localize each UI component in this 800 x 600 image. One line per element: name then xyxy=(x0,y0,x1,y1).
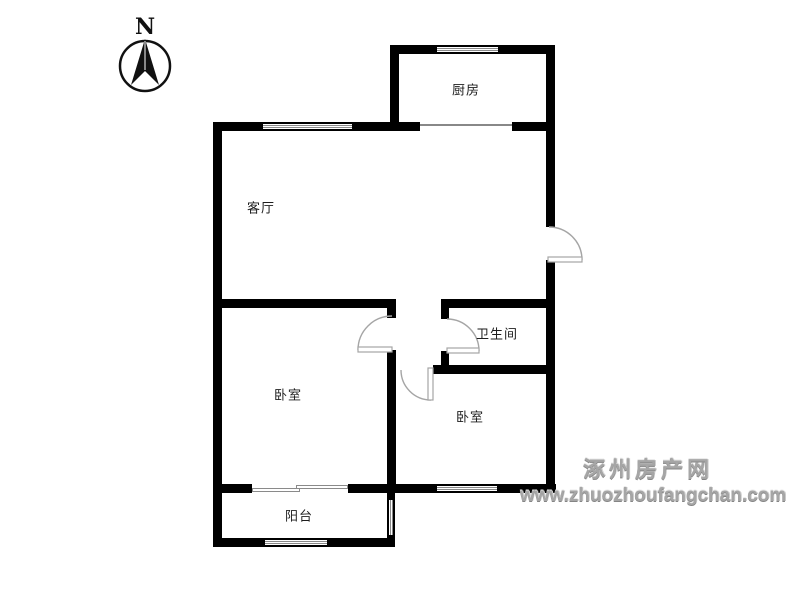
wall-bottom-a xyxy=(213,484,252,493)
wall-bathroom-bottom xyxy=(433,365,555,374)
watermark-site-url: www.zhuozhoufangchan.com xyxy=(520,485,786,507)
room-label-bathroom: 卫生间 xyxy=(476,324,518,343)
room-label-balcony: 阳台 xyxy=(285,506,313,525)
room-label-bedroom-left: 卧室 xyxy=(274,385,302,404)
bathroom-door xyxy=(447,319,479,353)
window-kitchen-top xyxy=(437,45,498,54)
window-livingroom-top xyxy=(263,122,352,131)
north-label: N xyxy=(135,14,155,40)
window-balcony-bottom xyxy=(265,538,327,547)
wall-livingroom-top-b xyxy=(352,122,420,131)
window-bedroom-right-bottom xyxy=(437,484,497,493)
wall-kitchen-left xyxy=(390,45,399,122)
bedroom-left-door xyxy=(358,316,392,352)
bedroom-right-door xyxy=(401,368,433,400)
sliding-door-panel-right xyxy=(296,485,348,489)
doors-compass-overlay: N xyxy=(0,0,800,600)
watermark-site-name: 涿州房产网 xyxy=(583,452,713,484)
wall-balcony-right-a xyxy=(387,493,395,500)
wall-balcony-bottom-a xyxy=(213,538,265,547)
wall-bedroom1-stub xyxy=(387,308,396,318)
wall-balcony-right-b xyxy=(387,535,395,547)
wall-right-upper xyxy=(546,45,555,227)
entry-door xyxy=(548,227,582,262)
wall-divider-living-right xyxy=(441,299,555,308)
sliding-door-panel-left xyxy=(252,488,300,492)
kitchen-pass-opening xyxy=(420,122,512,131)
window-balcony-right xyxy=(387,500,395,535)
wall-balcony-bottom-b xyxy=(327,538,395,547)
room-label-living-room: 客厅 xyxy=(247,198,275,217)
wall-bathroom-stub xyxy=(441,308,449,319)
wall-kitchen-top-a xyxy=(390,45,437,54)
room-label-bedroom-right: 卧室 xyxy=(456,407,484,426)
north-compass-icon: N xyxy=(120,14,170,91)
room-label-kitchen: 厨房 xyxy=(452,80,480,99)
wall-divider-living-left xyxy=(213,299,396,308)
wall-right-lower xyxy=(546,260,555,493)
floorplan-canvas: N 厨房 客厅 卧室 卧室 卫生间 阳台 涿州房产网 www.zhuozhouf… xyxy=(0,0,800,600)
wall-livingroom-top-a xyxy=(213,122,263,131)
wall-bedroom1-lower xyxy=(387,350,396,493)
